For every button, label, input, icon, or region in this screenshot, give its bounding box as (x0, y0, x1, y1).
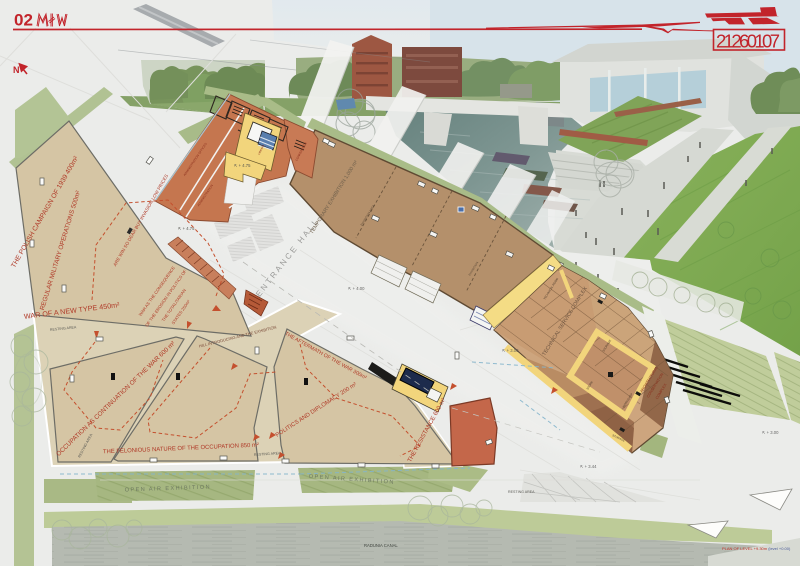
svg-text:PLAN OF LEVEL +9.30m (level: PLAN OF LEVEL +9.30m (level +0.00) (722, 546, 791, 551)
svg-text:N: N (13, 65, 20, 75)
svg-text:02: 02 (14, 11, 33, 30)
svg-text:RADUNIA CANAL: RADUNIA CANAL (364, 543, 398, 548)
svg-text:⇱ + 3.00: ⇱ + 3.00 (762, 430, 779, 435)
svg-text:⇱ + 3.44: ⇱ + 3.44 (580, 464, 597, 469)
svg-text:⇱ + 4.75: ⇱ + 4.75 (234, 163, 251, 168)
svg-text:21260107: 21260107 (716, 31, 780, 52)
svg-text:RESTING AREA: RESTING AREA (508, 490, 535, 494)
svg-text:⇱ + 4.00: ⇱ + 4.00 (348, 286, 365, 291)
svg-text:⇱ + 3.00: ⇱ + 3.00 (502, 348, 519, 353)
